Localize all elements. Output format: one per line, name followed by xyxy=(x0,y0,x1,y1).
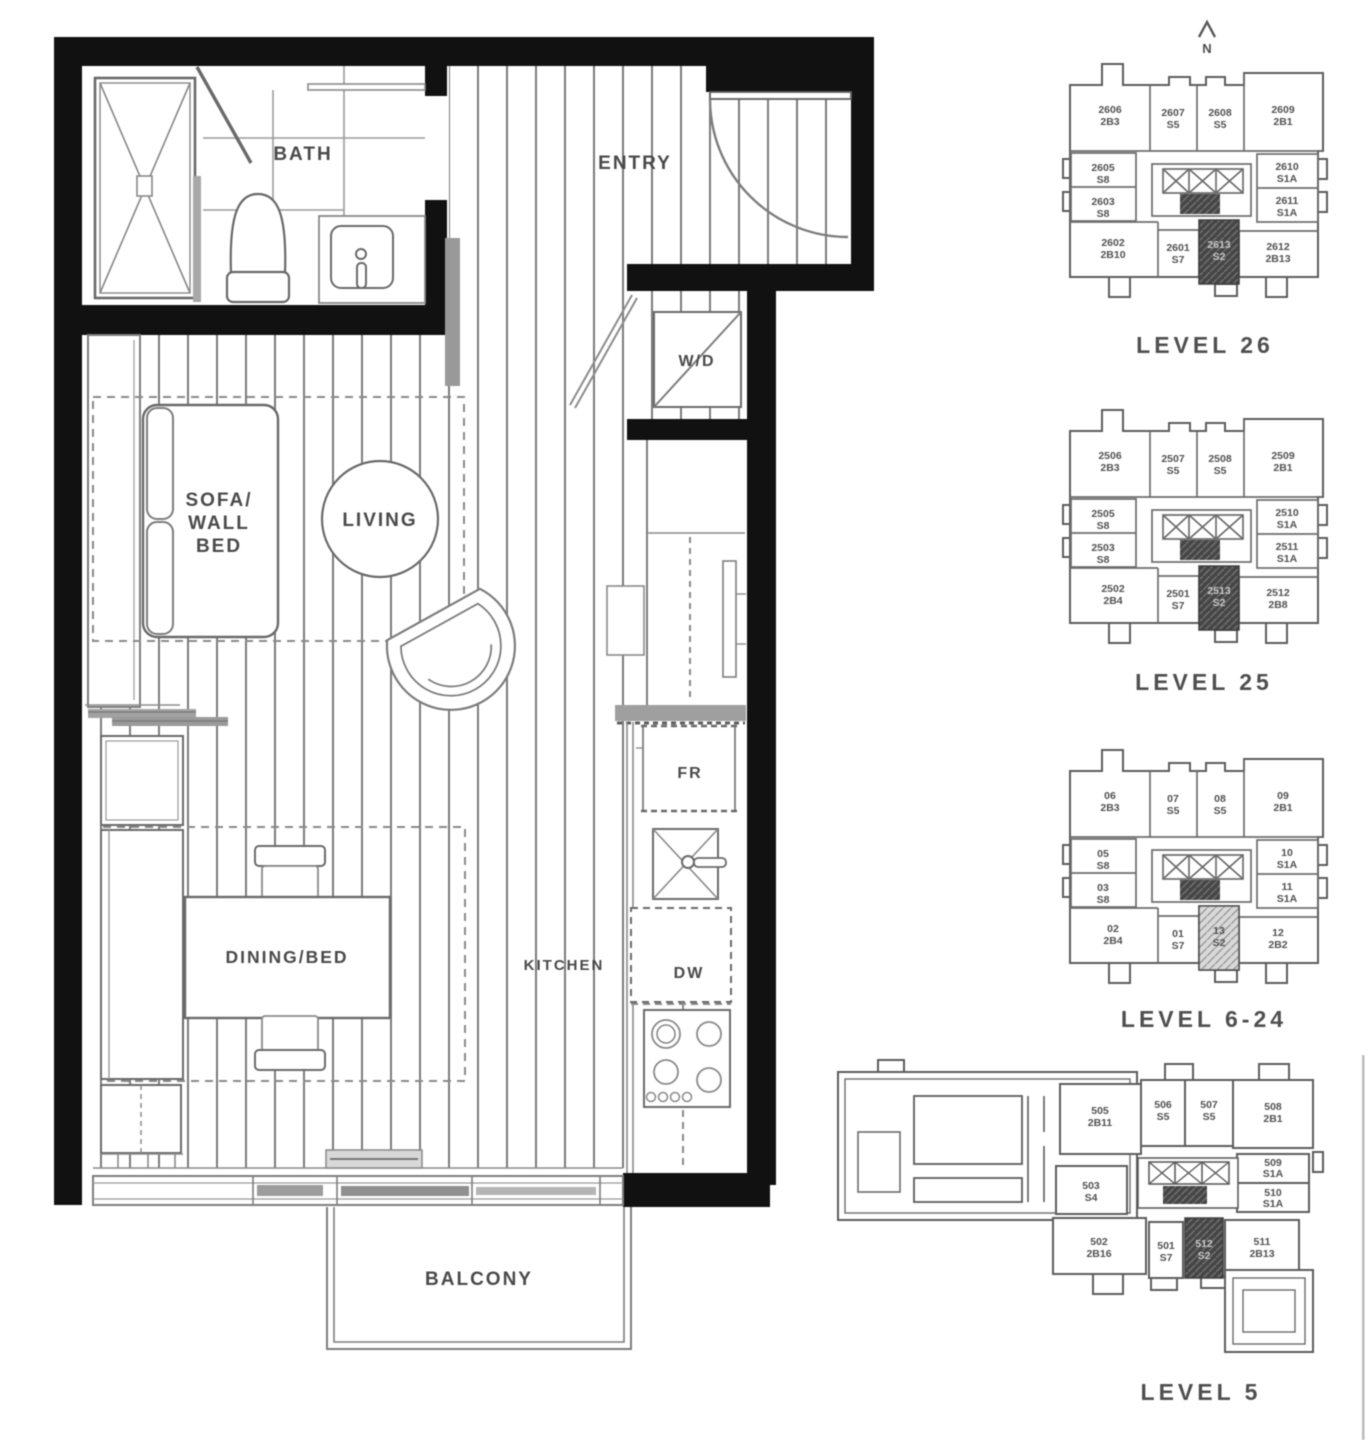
svg-text:2502: 2502 xyxy=(1101,583,1125,595)
svg-text:LEVEL 26: LEVEL 26 xyxy=(1136,332,1274,358)
svg-text:2603: 2603 xyxy=(1091,196,1115,208)
svg-text:2509: 2509 xyxy=(1271,450,1295,462)
svg-text:2B10: 2B10 xyxy=(1100,249,1125,261)
svg-text:S4: S4 xyxy=(1085,1192,1098,1204)
svg-text:07: 07 xyxy=(1167,793,1179,805)
svg-text:S2: S2 xyxy=(1213,937,1226,949)
svg-text:2605: 2605 xyxy=(1091,162,1115,174)
svg-text:S8: S8 xyxy=(1097,554,1110,566)
svg-text:2B1: 2B1 xyxy=(1273,802,1292,814)
svg-text:LIVING: LIVING xyxy=(342,510,417,531)
svg-text:2B3: 2B3 xyxy=(1100,802,1119,814)
svg-text:2B16: 2B16 xyxy=(1086,1248,1111,1260)
svg-text:S8: S8 xyxy=(1097,208,1110,220)
svg-text:508: 508 xyxy=(1264,1101,1282,1113)
svg-text:S5: S5 xyxy=(1157,1111,1170,1123)
svg-text:2B1: 2B1 xyxy=(1273,462,1292,474)
svg-text:S5: S5 xyxy=(1167,119,1180,131)
svg-text:S8: S8 xyxy=(1097,174,1110,186)
svg-text:2601: 2601 xyxy=(1166,242,1190,254)
svg-text:501: 501 xyxy=(1157,1240,1175,1252)
svg-text:2610: 2610 xyxy=(1275,161,1299,173)
svg-text:SOFA/: SOFA/ xyxy=(185,490,252,511)
svg-text:FR: FR xyxy=(677,765,702,782)
svg-text:BATH: BATH xyxy=(273,144,332,165)
svg-text:2B1: 2B1 xyxy=(1273,116,1292,128)
svg-text:2510: 2510 xyxy=(1275,507,1299,519)
svg-text:S2: S2 xyxy=(1213,597,1226,609)
svg-text:2602: 2602 xyxy=(1101,237,1125,249)
svg-text:DINING/BED: DINING/BED xyxy=(225,947,348,967)
svg-text:S1A: S1A xyxy=(1263,1198,1284,1210)
svg-text:503: 503 xyxy=(1082,1180,1100,1192)
svg-text:08: 08 xyxy=(1214,793,1226,805)
svg-text:LEVEL 5: LEVEL 5 xyxy=(1141,1379,1262,1405)
svg-text:S1A: S1A xyxy=(1277,519,1298,531)
svg-text:502: 502 xyxy=(1090,1236,1108,1248)
svg-text:S5: S5 xyxy=(1214,119,1227,131)
svg-text:S2: S2 xyxy=(1198,1250,1211,1262)
svg-text:2501: 2501 xyxy=(1166,588,1190,600)
svg-text:S1A: S1A xyxy=(1277,207,1298,219)
svg-text:DW: DW xyxy=(674,965,705,982)
svg-text:WALL: WALL xyxy=(188,513,250,534)
svg-text:2508: 2508 xyxy=(1208,453,1232,465)
svg-text:S7: S7 xyxy=(1172,600,1185,612)
svg-text:512: 512 xyxy=(1195,1238,1213,1250)
svg-text:S1A: S1A xyxy=(1263,1168,1284,1180)
svg-text:S1A: S1A xyxy=(1277,553,1298,565)
svg-text:S7: S7 xyxy=(1160,1252,1173,1264)
svg-text:BED: BED xyxy=(196,536,242,557)
svg-text:2B13: 2B13 xyxy=(1265,253,1290,265)
svg-text:S1A: S1A xyxy=(1277,893,1298,905)
svg-text:2B13: 2B13 xyxy=(1249,1248,1274,1260)
svg-text:2506: 2506 xyxy=(1098,450,1122,462)
svg-text:2B1: 2B1 xyxy=(1263,1113,1282,1125)
svg-text:2B3: 2B3 xyxy=(1100,116,1119,128)
svg-text:03: 03 xyxy=(1097,882,1109,894)
svg-text:2609: 2609 xyxy=(1271,104,1295,116)
svg-text:W/D: W/D xyxy=(678,353,715,370)
svg-text:S1A: S1A xyxy=(1277,173,1298,185)
svg-text:2612: 2612 xyxy=(1266,241,1290,253)
svg-text:2B2: 2B2 xyxy=(1268,939,1287,951)
svg-text:2507: 2507 xyxy=(1161,453,1185,465)
svg-text:S1A: S1A xyxy=(1277,859,1298,871)
svg-text:2505: 2505 xyxy=(1091,508,1115,520)
svg-text:S7: S7 xyxy=(1172,940,1185,952)
svg-text:S8: S8 xyxy=(1097,894,1110,906)
svg-text:2B4: 2B4 xyxy=(1103,595,1122,607)
svg-text:11: 11 xyxy=(1281,881,1292,893)
svg-text:S7: S7 xyxy=(1172,254,1185,266)
svg-text:S5: S5 xyxy=(1203,1111,1216,1123)
svg-text:2613: 2613 xyxy=(1207,239,1231,251)
svg-text:KITCHEN: KITCHEN xyxy=(524,957,605,974)
svg-text:2511: 2511 xyxy=(1276,541,1299,553)
svg-text:S8: S8 xyxy=(1097,520,1110,532)
svg-text:ENTRY: ENTRY xyxy=(598,153,672,174)
svg-text:2513: 2513 xyxy=(1207,585,1231,597)
svg-text:2611: 2611 xyxy=(1276,195,1299,207)
svg-text:01: 01 xyxy=(1172,928,1184,940)
svg-text:BALCONY: BALCONY xyxy=(425,1269,533,1290)
svg-text:09: 09 xyxy=(1277,790,1289,802)
svg-text:12: 12 xyxy=(1272,927,1284,939)
svg-text:S5: S5 xyxy=(1167,465,1180,477)
svg-text:506: 506 xyxy=(1154,1099,1172,1111)
svg-text:13: 13 xyxy=(1213,925,1225,937)
svg-text:507: 507 xyxy=(1200,1099,1218,1111)
svg-text:S8: S8 xyxy=(1097,860,1110,872)
svg-text:2B3: 2B3 xyxy=(1100,462,1119,474)
svg-text:02: 02 xyxy=(1107,923,1119,935)
svg-text:LEVEL 6-24: LEVEL 6-24 xyxy=(1121,1006,1287,1032)
svg-text:2606: 2606 xyxy=(1098,104,1122,116)
svg-text:S2: S2 xyxy=(1213,251,1226,263)
svg-text:S5: S5 xyxy=(1214,465,1227,477)
svg-text:S5: S5 xyxy=(1214,805,1227,817)
svg-text:2608: 2608 xyxy=(1208,107,1232,119)
svg-text:05: 05 xyxy=(1097,848,1109,860)
svg-text:2B8: 2B8 xyxy=(1268,599,1287,611)
svg-text:06: 06 xyxy=(1104,790,1116,802)
svg-text:N: N xyxy=(1202,41,1211,56)
svg-text:2512: 2512 xyxy=(1266,587,1290,599)
svg-text:2B4: 2B4 xyxy=(1103,935,1122,947)
svg-text:2B11: 2B11 xyxy=(1088,1117,1113,1129)
svg-text:511: 511 xyxy=(1254,1236,1271,1248)
svg-text:2607: 2607 xyxy=(1161,107,1185,119)
svg-text:S5: S5 xyxy=(1167,805,1180,817)
svg-text:10: 10 xyxy=(1281,847,1293,859)
svg-text:LEVEL 25: LEVEL 25 xyxy=(1135,669,1273,695)
svg-text:505: 505 xyxy=(1091,1105,1109,1117)
svg-text:2503: 2503 xyxy=(1091,542,1115,554)
